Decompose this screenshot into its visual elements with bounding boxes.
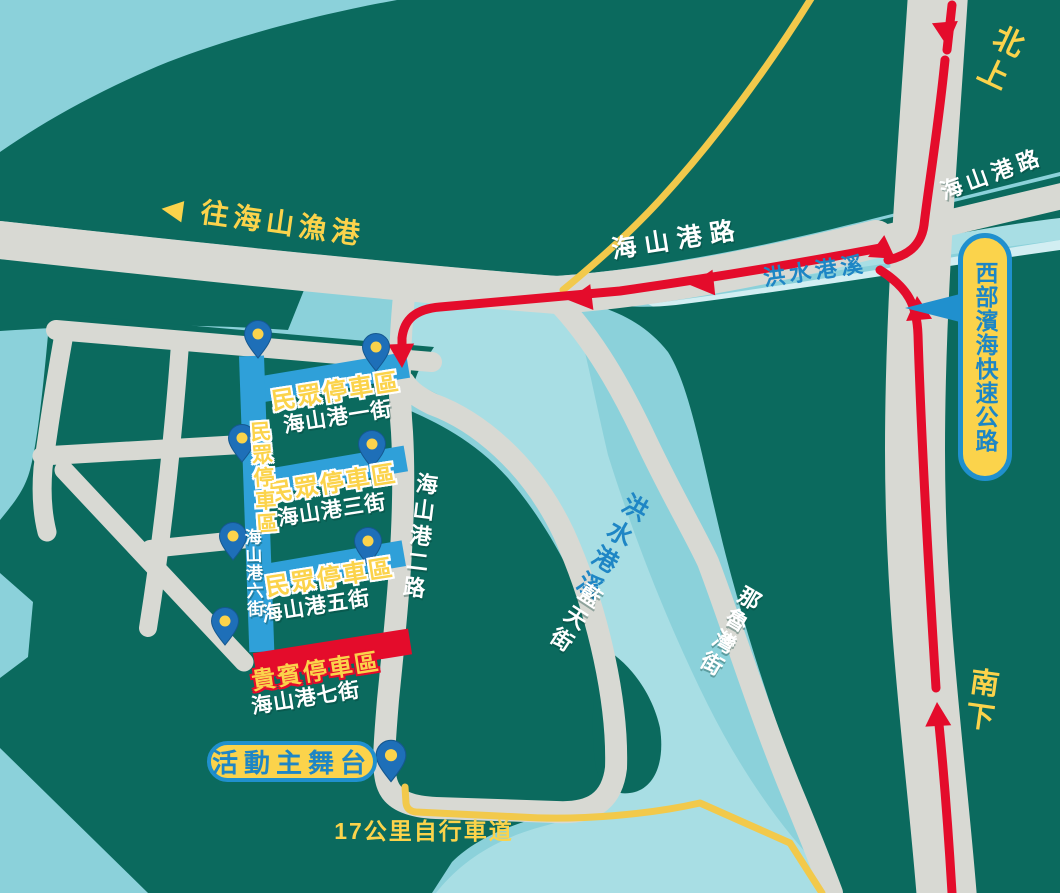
main-stage-label: 活動主舞台	[212, 743, 372, 780]
map-canvas	[0, 0, 1060, 893]
direction-arrow-west-icon: ◀	[160, 191, 191, 225]
street-grid-cross-1	[42, 444, 250, 456]
expressway-pointer-icon	[905, 294, 960, 322]
expressway-label: 西部濱海快速公路	[968, 261, 1002, 453]
main-stage-badge: 活動主舞台	[207, 741, 377, 782]
parking-street-6: 海山港六街	[242, 528, 263, 619]
event-traffic-map: ◀ 往海山漁港 海山港路 海山港路 洪水港溪 北上 南下 海山港二路 洪水港溪 …	[0, 0, 1060, 893]
bike-trail-label: 17公里自行車道	[334, 819, 514, 843]
expressway-badge: 西部濱海快速公路	[958, 233, 1012, 481]
